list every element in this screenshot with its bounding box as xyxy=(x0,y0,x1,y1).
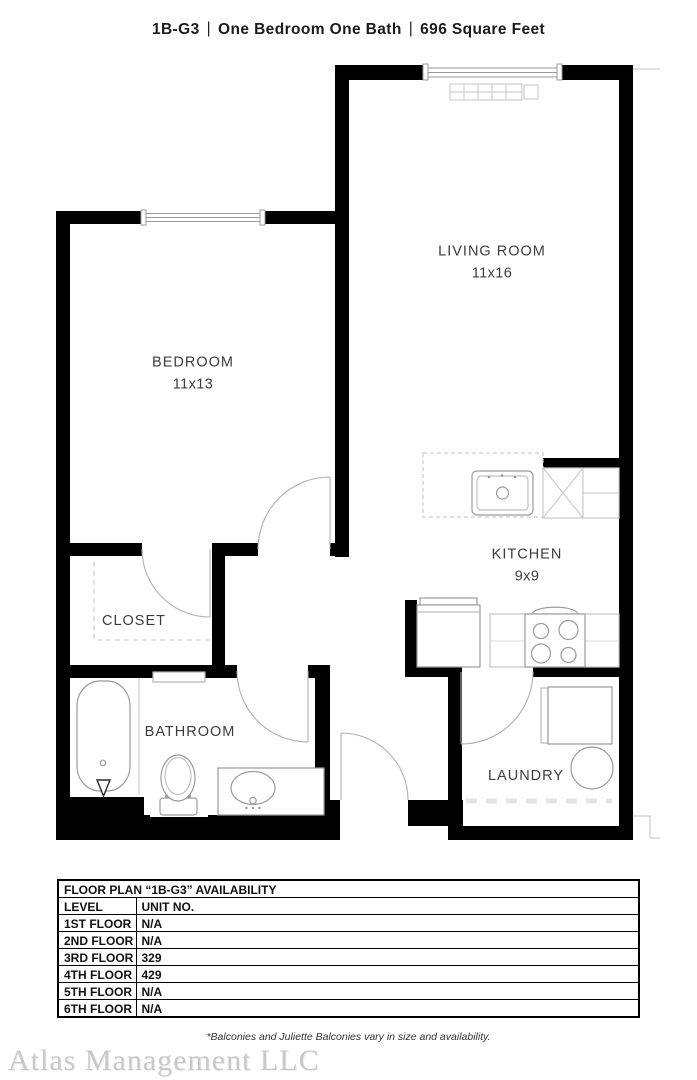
room-name: LAUNDRY xyxy=(488,766,564,788)
room-name: BEDROOM xyxy=(152,352,234,374)
laundry-door xyxy=(461,672,533,744)
wall xyxy=(144,815,315,840)
balcony-disclaimer: *Balconies and Juliette Balconies vary i… xyxy=(0,1031,697,1043)
bedroom-window xyxy=(141,210,265,225)
column-header-unit-no: UNIT NO. xyxy=(136,898,639,915)
closet-label: CLOSET xyxy=(102,611,166,633)
wall xyxy=(335,65,349,557)
kitchen-sink xyxy=(472,471,533,515)
level-cell: 1ST FLOOR xyxy=(58,915,136,932)
heater-unit xyxy=(450,84,538,100)
table-row: 5TH FLOOR N/A xyxy=(58,983,639,1000)
level-cell: 3RD FLOOR xyxy=(58,949,136,966)
room-name: LIVING ROOM xyxy=(438,241,546,263)
level-cell: 5TH FLOOR xyxy=(58,983,136,1000)
room-dims: 9x9 xyxy=(492,566,563,588)
wall xyxy=(56,665,237,678)
table-title-row: FLOOR PLAN “1B-G3” AVAILABILITY xyxy=(58,880,639,898)
wall xyxy=(405,600,417,677)
closet-door xyxy=(142,549,210,617)
vanity-sink xyxy=(218,768,324,815)
room-name: KITCHEN xyxy=(492,544,563,566)
dryer xyxy=(571,747,613,789)
floor-plan-page: 1B-G3|One Bedroom One Bath|696 Square Fe… xyxy=(0,0,697,1080)
unit-cell: N/A xyxy=(136,915,639,932)
table-row: 6TH FLOOR N/A xyxy=(58,1000,639,1018)
wall xyxy=(448,826,633,840)
company-watermark: Atlas Management LLC xyxy=(8,1044,320,1078)
level-cell: 2ND FLOOR xyxy=(58,932,136,949)
room-name: BATHROOM xyxy=(145,722,236,744)
table-header-row: LEVEL UNIT NO. xyxy=(58,898,639,915)
wall xyxy=(212,543,225,671)
mechanical-closet xyxy=(543,468,619,518)
table-title: FLOOR PLAN “1B-G3” AVAILABILITY xyxy=(58,880,639,898)
bedroom-door xyxy=(258,477,330,549)
bedroom-label: BEDROOM 11x13 xyxy=(152,352,234,396)
stove xyxy=(525,607,585,667)
living-room-window xyxy=(423,64,562,80)
wall xyxy=(533,667,633,677)
bathroom-shelf xyxy=(153,672,205,682)
wall xyxy=(262,211,349,224)
column-header-level: LEVEL xyxy=(58,898,136,915)
bathroom-label: BATHROOM xyxy=(145,722,236,744)
wall xyxy=(70,543,142,556)
wall xyxy=(408,800,463,826)
laundry-label: LAUNDRY xyxy=(488,766,564,788)
wall xyxy=(619,65,633,840)
level-cell: 4TH FLOOR xyxy=(58,966,136,983)
bathroom-door xyxy=(237,671,308,742)
unit-cell: N/A xyxy=(136,1000,639,1018)
availability-table: FLOOR PLAN “1B-G3” AVAILABILITY LEVEL UN… xyxy=(57,879,640,1018)
room-name: CLOSET xyxy=(102,611,166,633)
washer xyxy=(548,687,612,744)
refrigerator xyxy=(417,598,480,667)
unit-cell: 429 xyxy=(136,966,639,983)
living-room-label: LIVING ROOM 11x16 xyxy=(438,241,546,285)
laundry-shelf xyxy=(541,688,548,743)
neighbor-lines xyxy=(633,69,660,838)
wall xyxy=(56,211,70,840)
table-row: 3RD FLOOR 329 xyxy=(58,949,639,966)
unit-cell: 329 xyxy=(136,949,639,966)
level-cell: 6TH FLOOR xyxy=(58,1000,136,1018)
room-dims: 11x13 xyxy=(152,374,234,396)
bathtub xyxy=(77,681,130,796)
table-row: 2ND FLOOR N/A xyxy=(58,932,639,949)
kitchen-label: KITCHEN 9x9 xyxy=(492,544,563,588)
room-dims: 11x16 xyxy=(438,263,546,285)
unit-cell: N/A xyxy=(136,983,639,1000)
table-row: 1ST FLOOR N/A xyxy=(58,915,639,932)
wall xyxy=(543,458,633,468)
unit-cell: N/A xyxy=(136,932,639,949)
floor-plan xyxy=(0,0,697,860)
entry-door xyxy=(341,733,408,800)
wall xyxy=(56,797,144,840)
table-row: 4TH FLOOR 429 xyxy=(58,966,639,983)
wall xyxy=(330,543,349,556)
toilet xyxy=(150,755,208,817)
